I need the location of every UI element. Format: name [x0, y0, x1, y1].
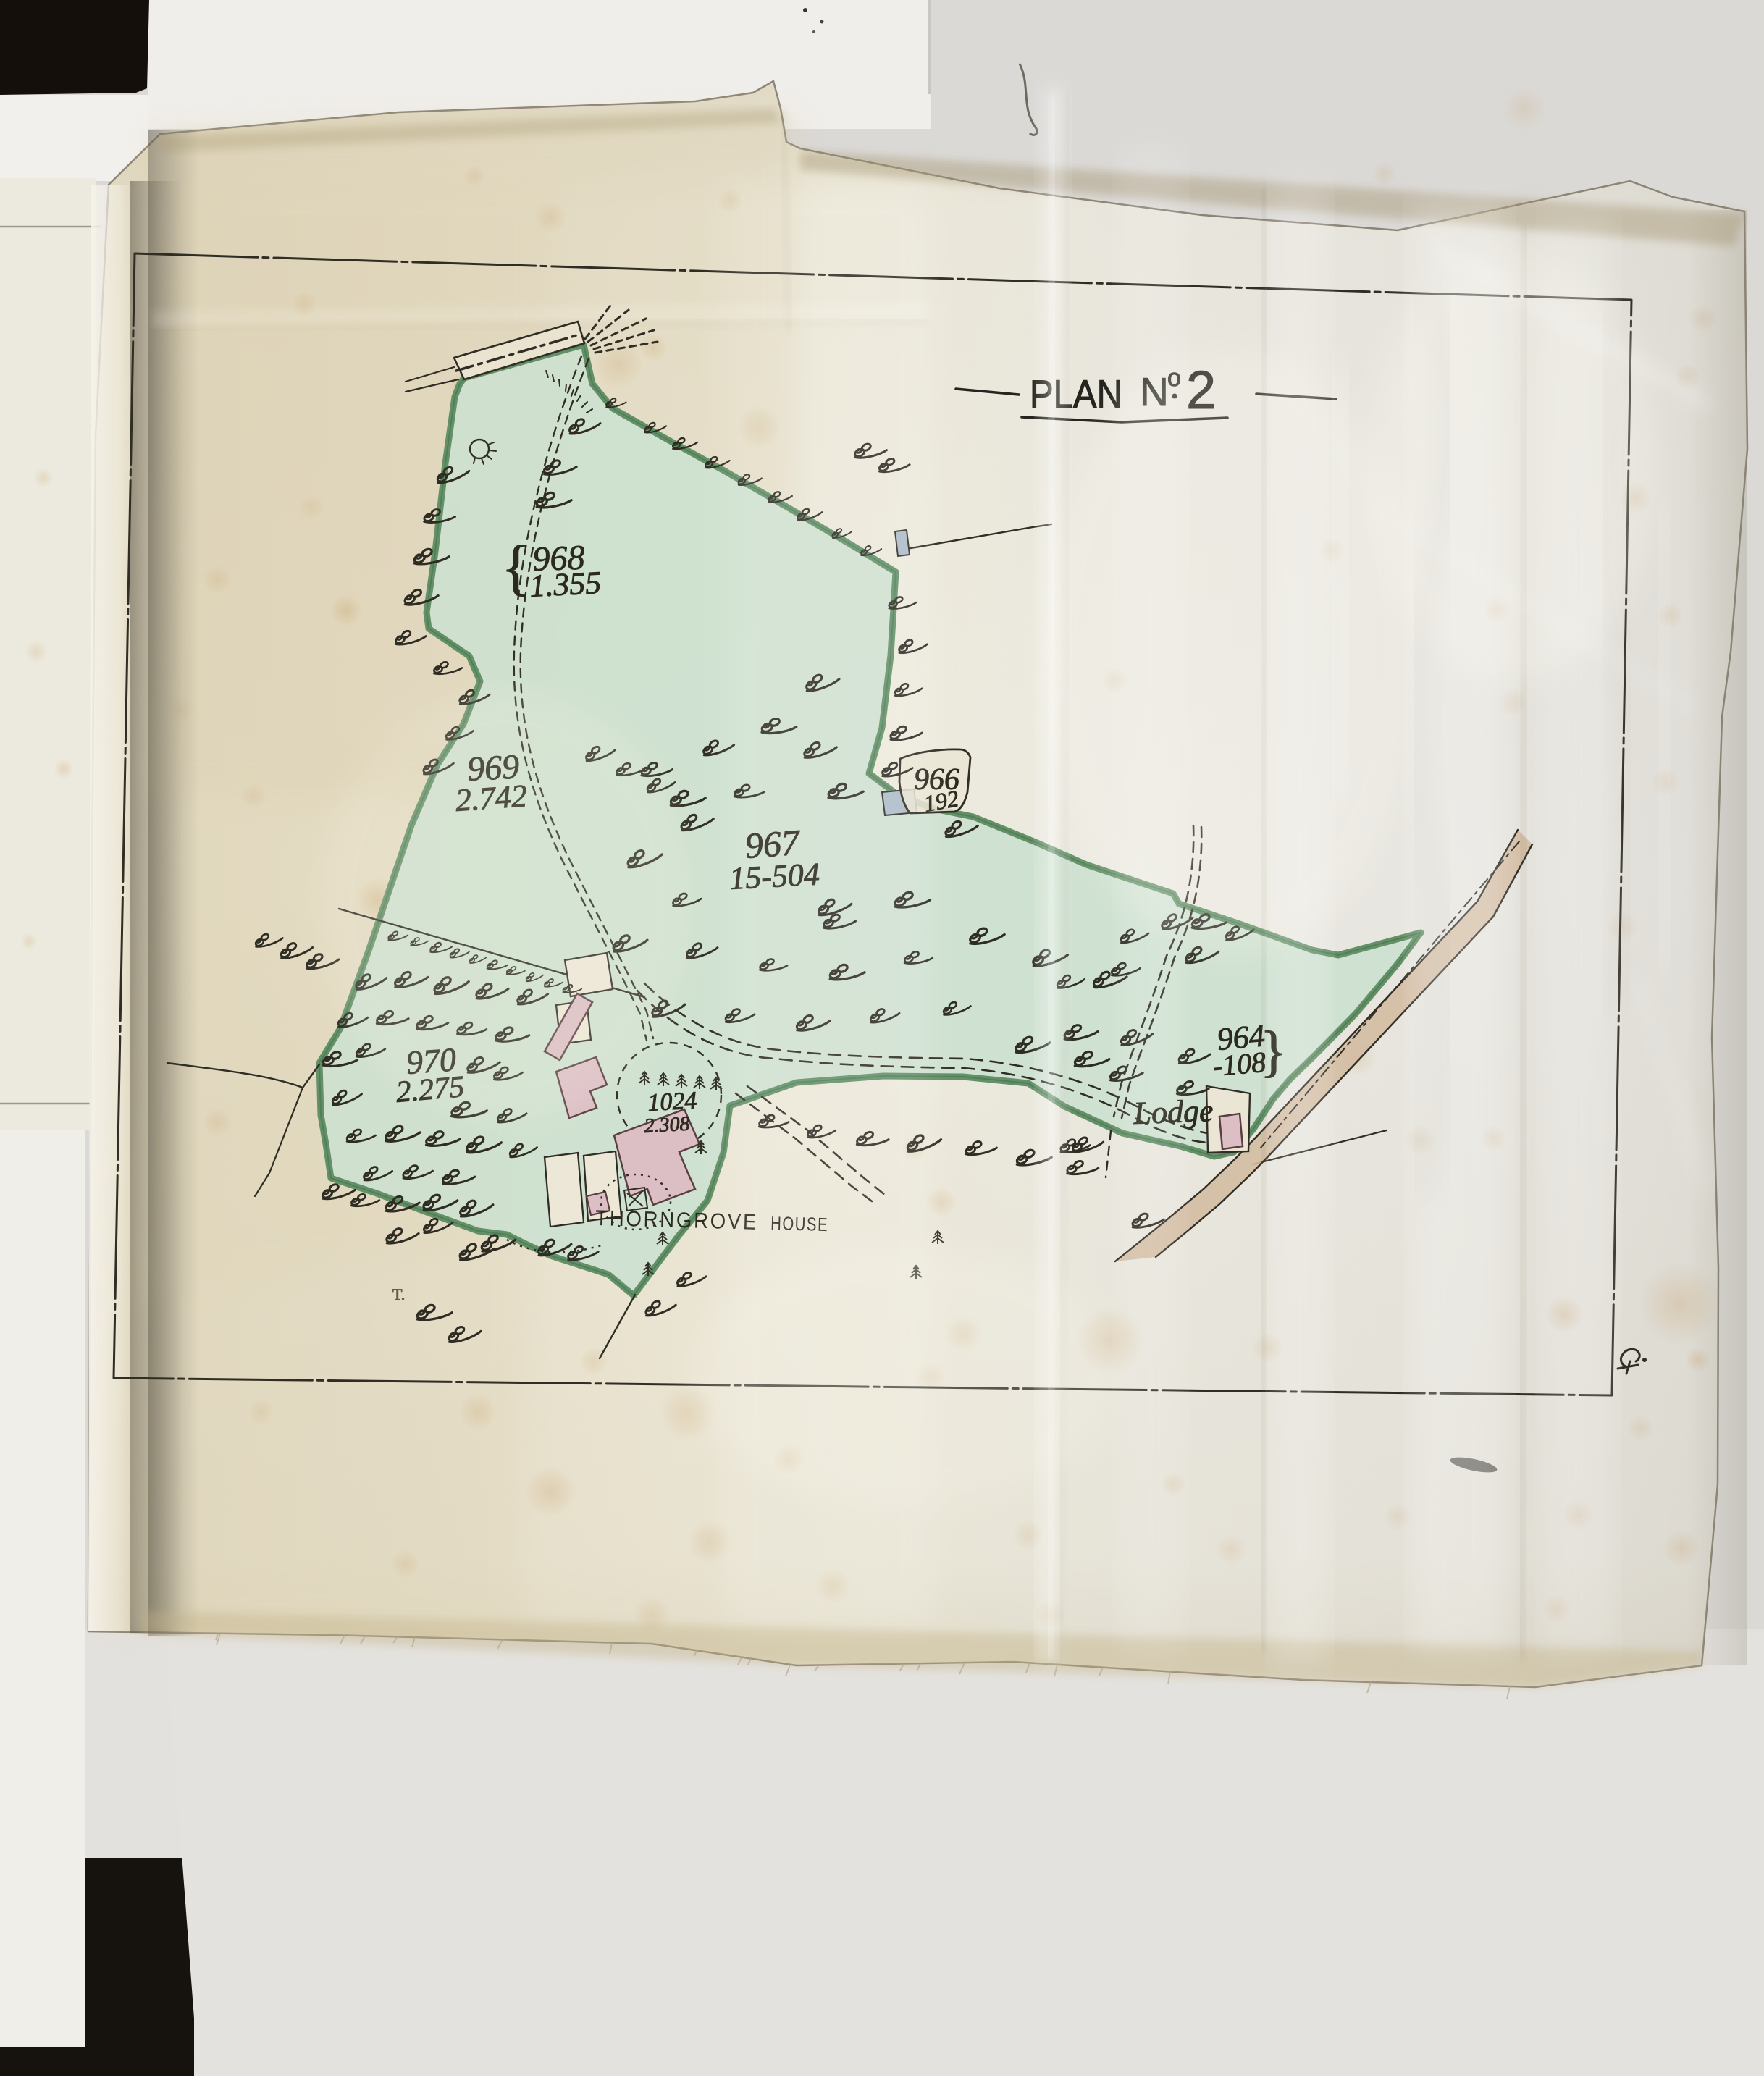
svg-text:1.355: 1.355 — [529, 565, 602, 604]
svg-text:{: { — [501, 532, 531, 602]
svg-text:2.308: 2.308 — [644, 1113, 691, 1138]
svg-text:-108: -108 — [1211, 1046, 1267, 1083]
svg-text:1024: 1024 — [647, 1087, 697, 1117]
svg-text:T.: T. — [392, 1285, 405, 1303]
